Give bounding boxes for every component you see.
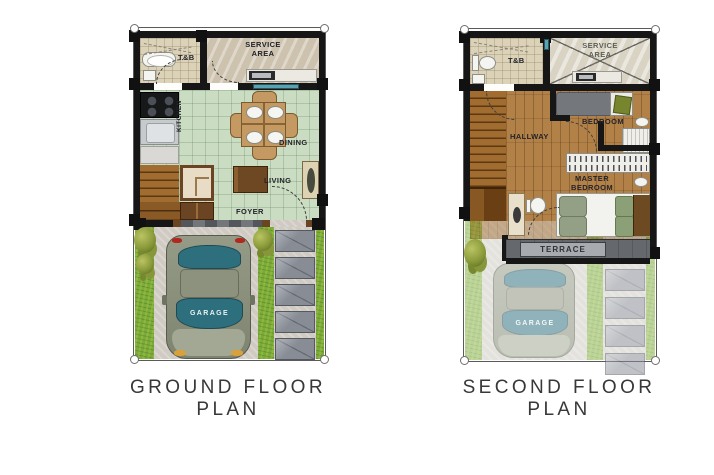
stone-paver xyxy=(605,297,645,319)
stone-paver xyxy=(275,311,315,333)
plate xyxy=(246,131,263,144)
wall xyxy=(134,31,325,38)
bed-cushion xyxy=(559,196,587,217)
car-headlight xyxy=(174,350,186,356)
wall-pier xyxy=(459,79,470,91)
stone-paver xyxy=(275,257,315,279)
toilet xyxy=(479,56,496,70)
pillow-frame xyxy=(610,92,633,116)
wall-pier xyxy=(649,143,660,155)
car-roof xyxy=(506,287,564,310)
floor-plan-sheet: T&B SERVICE AREA KITCHEN xyxy=(0,0,714,475)
foyer-label: FOYER xyxy=(236,208,264,217)
living-label: LIVING xyxy=(264,177,291,186)
bathroom-sink xyxy=(143,70,156,81)
service-area-label: SERVICE AREA xyxy=(570,42,630,59)
stone-paver xyxy=(605,325,645,347)
bedroom-label: BEDROOM xyxy=(574,118,632,127)
wall xyxy=(514,84,550,91)
wall xyxy=(598,145,650,151)
closet-ticks xyxy=(569,165,647,171)
bush xyxy=(464,239,486,267)
wall xyxy=(464,31,470,221)
bathroom-sink xyxy=(472,74,485,84)
car-mirror xyxy=(162,295,167,305)
dining-label: DINING xyxy=(279,139,308,148)
car-headlight xyxy=(231,350,243,356)
terrace: TERRACE xyxy=(506,239,650,259)
wall-pier xyxy=(459,207,470,219)
terrace-label: TERRACE xyxy=(540,245,586,254)
bed-cushion xyxy=(559,216,587,237)
car-hood xyxy=(498,335,570,356)
wall xyxy=(550,84,650,91)
ground-floor-plan: T&B SERVICE AREA KITCHEN xyxy=(133,27,326,361)
wall xyxy=(464,31,656,38)
wall xyxy=(470,84,484,91)
stone-paver xyxy=(275,284,315,306)
car-taillight xyxy=(235,238,245,243)
drawer-cabinet xyxy=(180,202,214,220)
hallway-label: HALLWAY xyxy=(510,133,549,142)
door-post xyxy=(262,220,270,227)
wall-pier xyxy=(317,78,328,90)
ground-floor-title: GROUND FLOOR PLAN xyxy=(103,377,353,421)
wall-pier xyxy=(312,218,325,230)
pillow xyxy=(615,216,634,237)
foyer-entry-opening xyxy=(270,220,306,227)
car-roof xyxy=(180,269,239,298)
wall-pier xyxy=(649,79,660,91)
cabinet-shelf xyxy=(195,177,209,196)
second-floor-plan: GARAGE xyxy=(463,28,657,362)
coffee-table xyxy=(233,166,268,193)
service-area-label: SERVICE AREA xyxy=(233,41,293,58)
master-bedroom-label: MASTER BEDROOM xyxy=(560,175,624,192)
stair-landing xyxy=(470,187,506,221)
storage-cabinet xyxy=(180,165,214,201)
toilet-tank xyxy=(472,55,479,71)
lot-corner-marker xyxy=(130,24,139,33)
plate xyxy=(246,106,263,119)
vanity-sink xyxy=(513,207,521,223)
closet-ticks xyxy=(569,156,647,162)
door-post xyxy=(173,220,181,227)
car-rear-window xyxy=(504,269,566,288)
service-counter xyxy=(246,69,317,82)
car-rear-window xyxy=(178,245,241,269)
pillow xyxy=(615,196,634,217)
side-table xyxy=(634,177,648,187)
laundry-sink-basin xyxy=(252,73,271,78)
bush xyxy=(136,254,154,274)
car-mirror xyxy=(250,295,255,305)
window xyxy=(253,84,299,89)
stone-paver xyxy=(605,353,645,375)
kitchen-sink-basin xyxy=(146,123,175,143)
wall xyxy=(506,258,650,264)
stone-paver xyxy=(275,230,315,252)
wall xyxy=(134,31,140,227)
cooktop-stove xyxy=(140,92,179,118)
wall xyxy=(146,220,173,227)
kitchen-sink xyxy=(140,119,179,145)
car-windshield: GARAGE xyxy=(502,310,568,336)
bush xyxy=(253,229,273,251)
lot-corner-marker xyxy=(130,355,139,364)
wall xyxy=(182,83,210,90)
refrigerator xyxy=(140,146,179,164)
headboard xyxy=(633,195,651,236)
bush xyxy=(134,227,156,253)
car: GARAGE xyxy=(166,235,251,359)
lot-corner-marker xyxy=(320,355,329,364)
wall-pier xyxy=(317,194,328,206)
kitchen-label: KITCHEN xyxy=(176,94,183,132)
bed xyxy=(556,193,650,237)
wall-pier xyxy=(649,247,660,259)
stone-paver xyxy=(275,338,315,360)
side-table xyxy=(635,117,649,127)
garage-gate xyxy=(181,220,262,227)
master-closet xyxy=(566,153,650,173)
wall-pier xyxy=(196,30,207,42)
dining-chair xyxy=(284,113,298,138)
sofa-cushion xyxy=(307,168,315,193)
second-floor-title: SECOND FLOOR PLAN xyxy=(434,377,684,421)
wall-pier xyxy=(129,214,140,226)
wall xyxy=(140,83,154,90)
terrace-plate: TERRACE xyxy=(520,242,606,257)
lot-corner-marker xyxy=(320,24,329,33)
laundry-sink xyxy=(576,73,596,81)
garage-label: GARAGE xyxy=(515,320,554,327)
lot-corner-marker xyxy=(651,25,660,34)
wall xyxy=(200,38,207,84)
wall-pier xyxy=(129,78,140,90)
stone-paver xyxy=(605,269,645,291)
grass-strip xyxy=(316,227,324,359)
lot-corner-marker xyxy=(460,25,469,34)
service-counter xyxy=(572,71,622,83)
toilet-bath-label: T&B xyxy=(178,54,195,63)
stairs xyxy=(140,165,179,202)
lot-corner-marker xyxy=(651,356,660,365)
laundry-sink-basin xyxy=(579,75,593,79)
plate xyxy=(267,106,284,119)
car-taillight xyxy=(172,238,182,243)
car-windshield: GARAGE xyxy=(176,298,243,329)
laundry-sink xyxy=(249,71,275,80)
toilet-bath-label: T&B xyxy=(508,57,525,66)
vanity-counter xyxy=(508,193,525,236)
lot-corner-marker xyxy=(460,356,469,365)
car: GARAGE xyxy=(493,263,575,358)
garage-label: GARAGE xyxy=(190,310,229,317)
window xyxy=(544,39,549,50)
dining-chair xyxy=(252,146,277,160)
pillow xyxy=(613,95,632,115)
